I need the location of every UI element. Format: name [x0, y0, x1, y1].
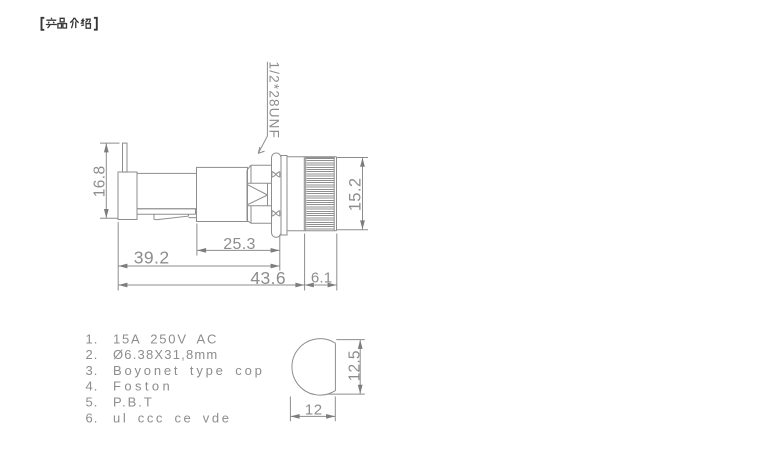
svg-text:3.: 3.: [86, 363, 99, 378]
svg-text:12: 12: [305, 401, 323, 418]
svg-text:Foston: Foston: [113, 379, 173, 394]
svg-text:15A 250V AC: 15A 250V AC: [113, 331, 218, 346]
svg-text:43.6: 43.6: [250, 268, 286, 288]
svg-text:12.5: 12.5: [346, 350, 363, 381]
svg-text:39.2: 39.2: [134, 248, 170, 268]
svg-text:6.1: 6.1: [311, 270, 332, 287]
svg-text:Ø6.38X31,8mm: Ø6.38X31,8mm: [113, 347, 218, 362]
svg-text:25.3: 25.3: [223, 236, 255, 253]
svg-text:P.B.T: P.B.T: [113, 395, 154, 410]
svg-text:ul ccc ce vde: ul ccc ce vde: [113, 410, 232, 425]
svg-text:5.: 5.: [86, 395, 99, 410]
svg-text:1.: 1.: [86, 331, 99, 346]
svg-text:Boyonet type cop: Boyonet type cop: [113, 363, 265, 378]
svg-text:16.8: 16.8: [92, 166, 109, 198]
svg-text:15.2: 15.2: [346, 178, 364, 212]
svg-text:2.: 2.: [86, 347, 99, 362]
svg-text:4.: 4.: [86, 379, 99, 394]
svg-text:6.: 6.: [86, 410, 99, 425]
svg-text:1/2*28UNF: 1/2*28UNF: [267, 62, 282, 140]
